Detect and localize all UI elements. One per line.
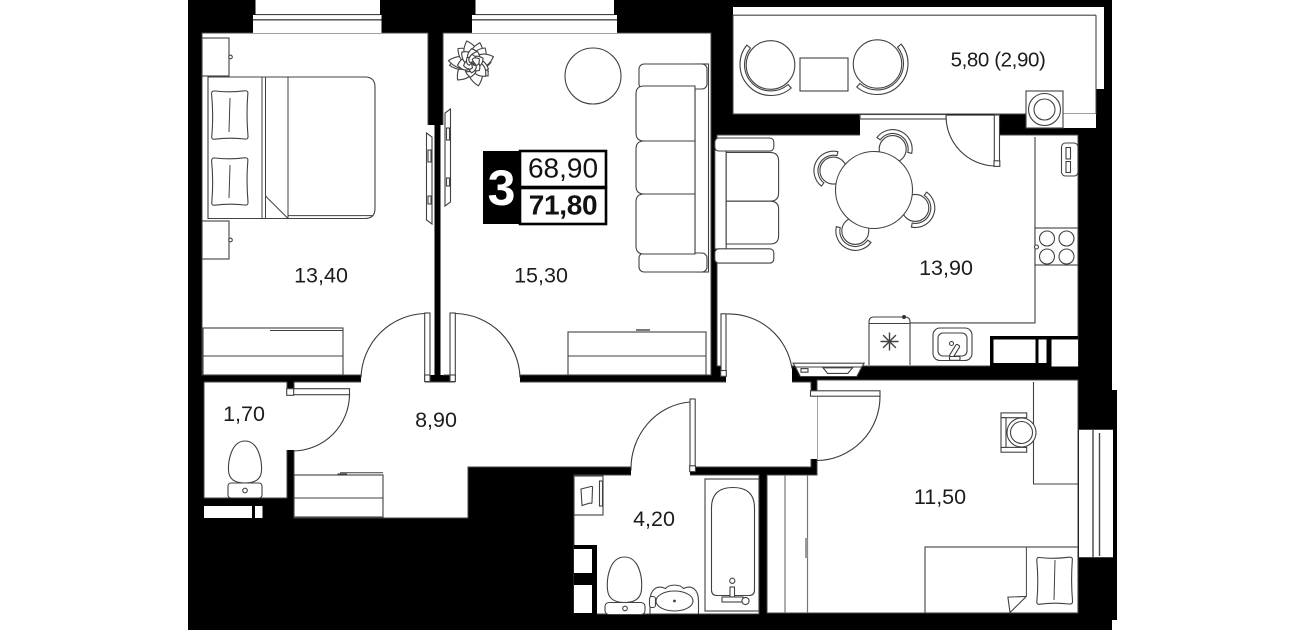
svg-text:5,80 (2,90): 5,80 (2,90) xyxy=(951,49,1046,72)
svg-text:4,20: 4,20 xyxy=(633,507,675,531)
svg-text:68,90: 68,90 xyxy=(528,153,598,184)
svg-text:1,70: 1,70 xyxy=(223,402,265,426)
svg-text:15,30: 15,30 xyxy=(514,264,568,288)
svg-text:71,80: 71,80 xyxy=(529,190,598,221)
svg-text:13,40: 13,40 xyxy=(294,264,348,288)
svg-text:8,90: 8,90 xyxy=(415,408,457,432)
svg-text:13,90: 13,90 xyxy=(919,256,973,280)
svg-text:3: 3 xyxy=(488,160,516,216)
svg-text:11,50: 11,50 xyxy=(914,485,966,509)
